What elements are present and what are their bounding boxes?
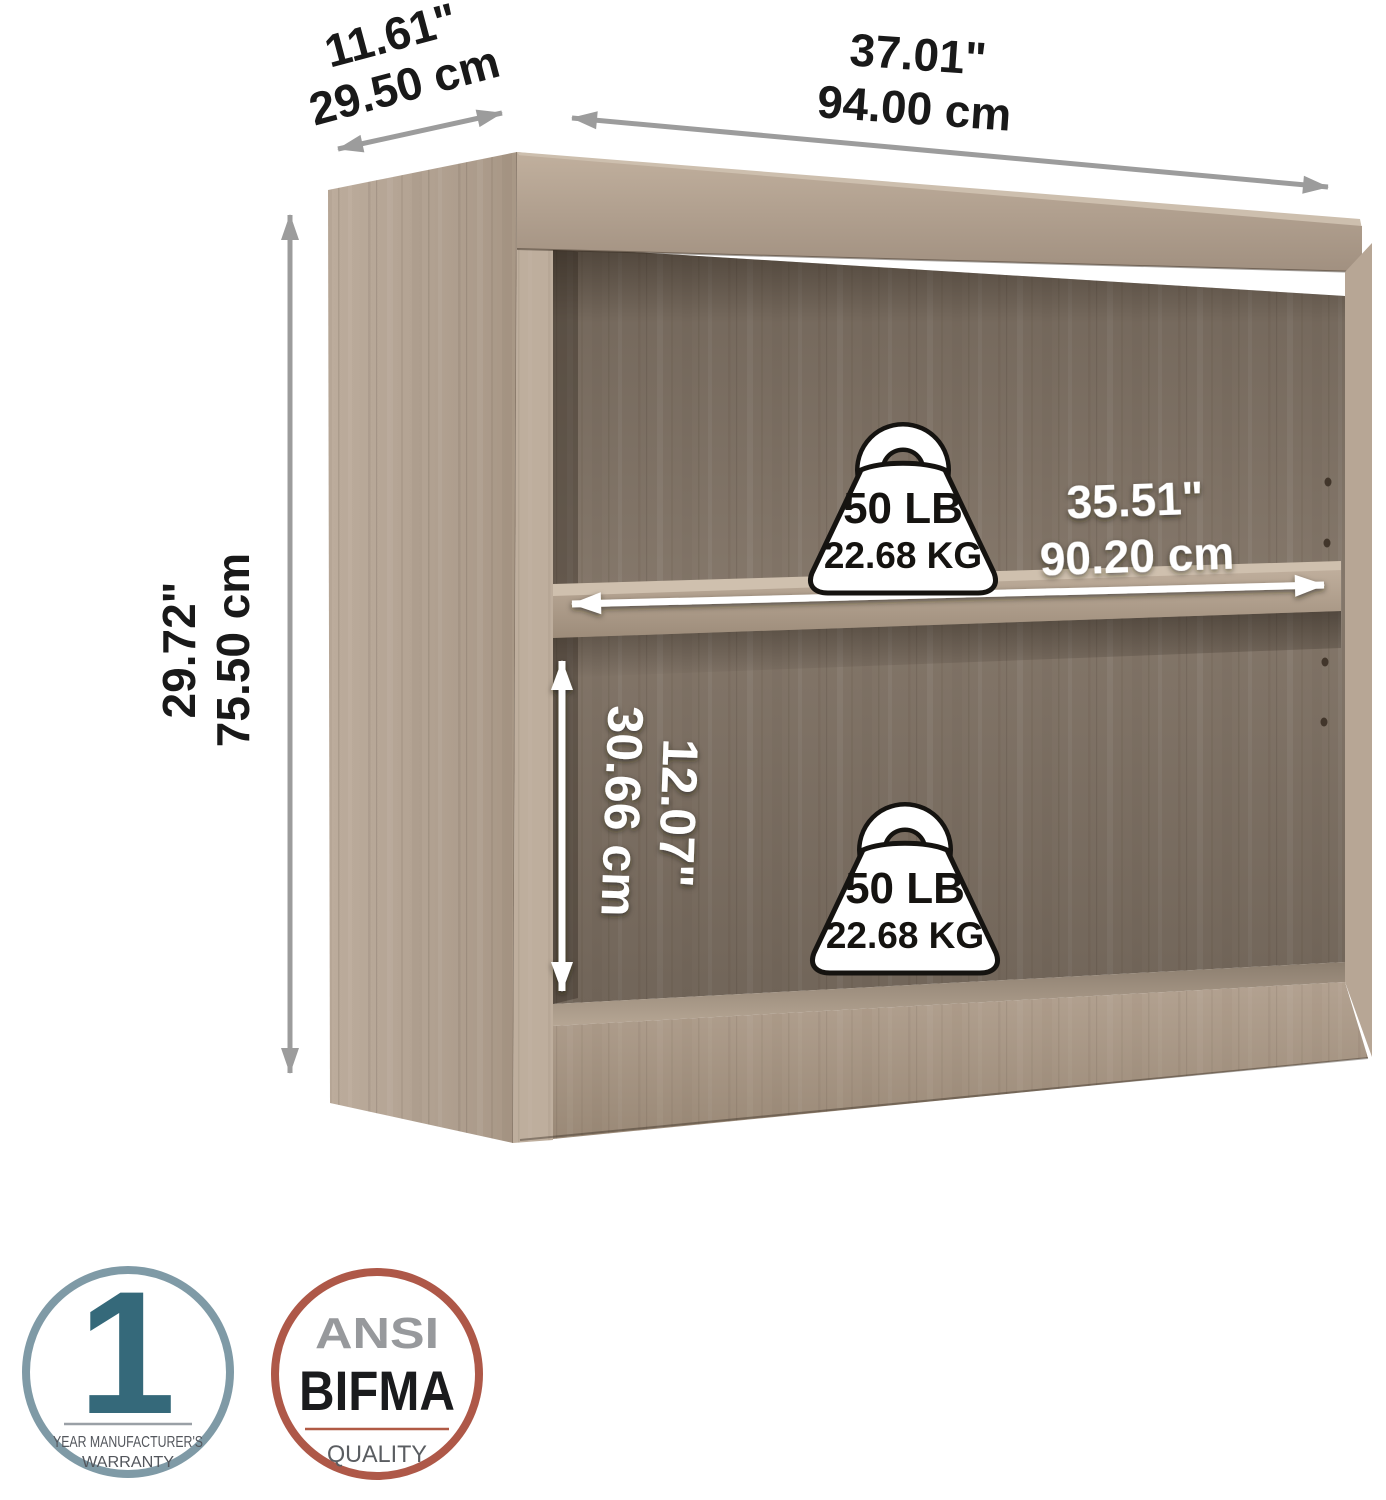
left-front-edge (513, 152, 556, 1143)
warranty-number: 1 (78, 1256, 175, 1451)
upper-capacity-lb: 50 LB (843, 484, 963, 533)
lower-capacity-kg: 22.68 KG (826, 915, 984, 956)
bookcase-illustration (328, 152, 1372, 1143)
warranty-line1: YEAR MANUFACTURER'S (53, 1434, 203, 1451)
upper-capacity-kg: 22.68 KG (824, 535, 982, 576)
width-label: 37.01" 94.00 cm (816, 21, 1017, 140)
shelf-clearance-cm: 30.66 cm (590, 705, 653, 918)
side-panel (328, 152, 517, 1143)
shelf-width-inches: 35.51" (1066, 472, 1205, 529)
quality-badge: ANSI BIFMA QUALITY (275, 1272, 479, 1476)
warranty-badge: 1 YEAR MANUFACTURER'S WARRANTY (26, 1256, 230, 1474)
shelf-clearance-inches: 12.07" (647, 738, 708, 889)
quality-line1: ANSI (315, 1309, 439, 1358)
lower-capacity-lb: 50 LB (845, 864, 965, 913)
warranty-line2: WARRANTY (82, 1454, 174, 1471)
height-inches: 29.72" (153, 582, 205, 719)
height-label: 29.72" 75.50 cm (153, 553, 259, 747)
right-front-edge (1345, 243, 1372, 1057)
depth-label: 11.61" 29.50 cm (290, 0, 505, 135)
height-cm: 75.50 cm (207, 553, 259, 747)
width-inches: 37.01" (848, 23, 988, 84)
product-dimension-diagram: 11.61" 29.50 cm 37.01" 94.00 cm 29.72" 7… (0, 0, 1386, 1500)
shelf-width-cm: 90.20 cm (1039, 527, 1235, 586)
quality-line3: QUALITY (327, 1441, 427, 1468)
width-cm: 94.00 cm (816, 75, 1014, 140)
quality-line2: BIFMA (299, 1359, 455, 1422)
